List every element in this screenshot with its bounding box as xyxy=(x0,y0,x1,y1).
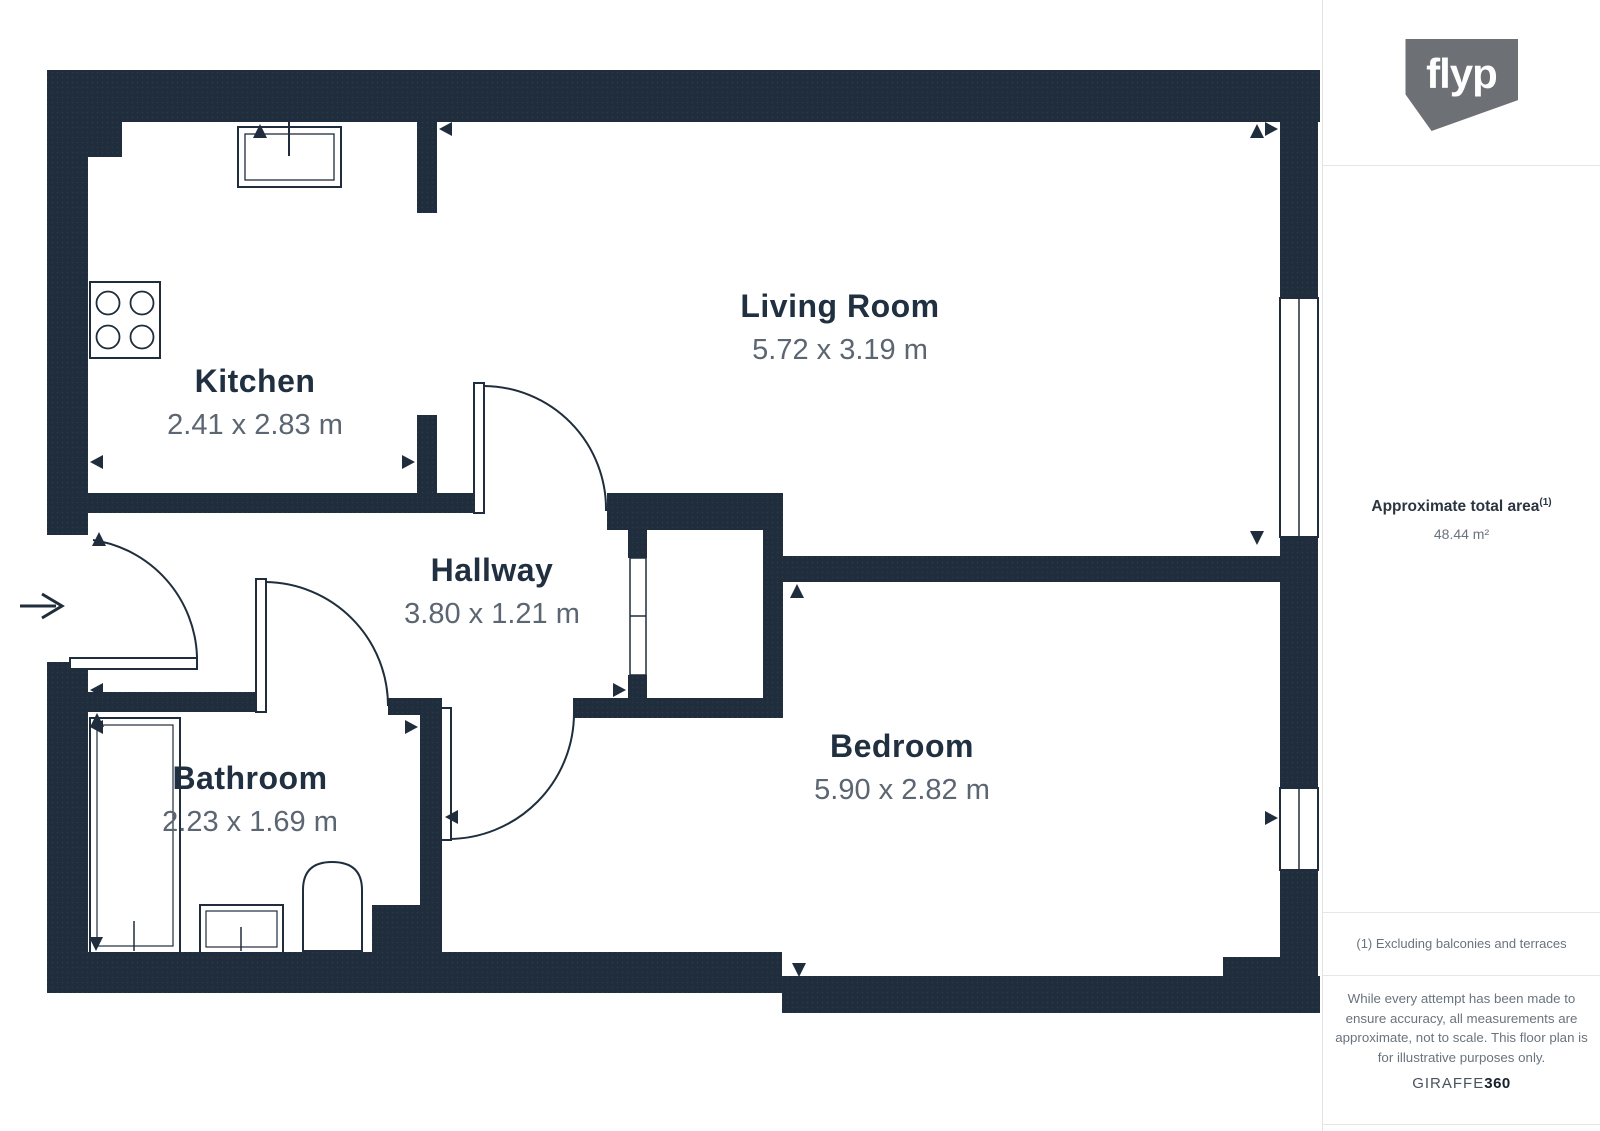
wall-closet-left-stub-lower xyxy=(628,675,647,698)
flyp-logo: flyp xyxy=(1405,39,1518,131)
hallway-dim-arrow-right xyxy=(613,683,626,697)
bathroom-door-arc xyxy=(266,582,388,706)
brand-name: GIRAFFE xyxy=(1412,1075,1484,1092)
floorplan-page: Kitchen 2.41 x 2.83 m Living Room 5.72 x… xyxy=(0,0,1600,1131)
bedroom-dim-arrow-down xyxy=(792,963,806,977)
toilet xyxy=(303,862,362,951)
divider xyxy=(1323,165,1600,166)
wall-bathroom-right xyxy=(420,715,442,907)
total-area-block: Approximate total area(1) 48.44 m² xyxy=(1323,497,1600,542)
wall-closet-left-stub-upper xyxy=(628,530,647,558)
wall-closet-right xyxy=(763,530,783,718)
living-dim-arrow-right xyxy=(1265,122,1278,136)
divider xyxy=(1323,912,1600,913)
divider xyxy=(1323,975,1600,976)
floorplan-drawing xyxy=(0,0,1322,1131)
info-sidebar: flyp Approximate total area(1) 48.44 m² … xyxy=(1322,0,1600,1131)
living-dim-arrow-left xyxy=(439,122,452,136)
living-room-door-leaf xyxy=(474,383,484,513)
wall-topleft-step xyxy=(88,122,122,157)
entrance-door-leaf xyxy=(70,658,197,669)
hallway-dim-arrow-up xyxy=(92,532,106,546)
living-dim-arrow-down xyxy=(1250,531,1264,545)
wall-bottom-corner-step xyxy=(1223,957,1280,982)
wall-kitchen-living-upper xyxy=(417,122,437,213)
wall-hallway-top xyxy=(88,493,477,513)
kitchen-dim-arrow-left xyxy=(90,455,103,469)
wall-bathroom-step xyxy=(372,905,442,957)
wall-left-lower xyxy=(47,662,88,955)
entry-arrow-icon xyxy=(20,594,62,618)
bedroom-door-arc xyxy=(449,713,574,839)
shower xyxy=(90,718,180,953)
wall-top xyxy=(47,70,1320,122)
bedroom-dim-arrow-up xyxy=(790,584,804,598)
wall-bottom-left xyxy=(47,952,782,993)
entrance-door-arc xyxy=(93,540,197,657)
bedroom-door-leaf xyxy=(441,708,451,840)
disclaimer-text: While every attempt has been made to ens… xyxy=(1333,989,1591,1067)
bedroom-dim-arrow-right xyxy=(1265,811,1278,825)
bathroom-dim-arrow-right xyxy=(405,720,418,734)
fixtures xyxy=(90,122,362,953)
total-area-label-text: Approximate total area xyxy=(1371,498,1539,515)
total-area-label: Approximate total area(1) xyxy=(1323,497,1600,516)
kitchen-dim-arrow-right xyxy=(402,455,415,469)
footnote-text: (1) Excluding balconies and terraces xyxy=(1323,936,1600,951)
flyp-logo-text: flyp xyxy=(1426,50,1497,98)
total-area-value: 48.44 m² xyxy=(1323,526,1600,542)
wall-right-lower xyxy=(1280,870,1318,1013)
bathroom-door-leaf xyxy=(256,579,266,712)
flyp-logo-shape: flyp xyxy=(1405,39,1518,131)
wall-right-upper xyxy=(1280,122,1318,298)
wall-right-middle xyxy=(1280,537,1318,788)
wall-closet-top xyxy=(607,493,783,530)
wall-left-upper xyxy=(47,70,88,535)
dimension-arrows xyxy=(89,122,1278,977)
living-dim-arrow-up xyxy=(1250,124,1264,138)
living-room-door-arc xyxy=(484,386,606,511)
wall-bathroom-top-post xyxy=(388,698,442,715)
footnote-marker: (1) xyxy=(1539,497,1551,508)
wall-bathroom-top xyxy=(88,692,262,712)
wall-living-bedroom-divider xyxy=(783,556,1280,582)
brand-suffix: 360 xyxy=(1484,1075,1511,1092)
wall-closet-bottom xyxy=(573,698,783,718)
walls xyxy=(47,70,1320,1013)
divider xyxy=(1323,1124,1600,1125)
giraffe360-brand: GIRAFFE360 xyxy=(1323,1075,1600,1092)
